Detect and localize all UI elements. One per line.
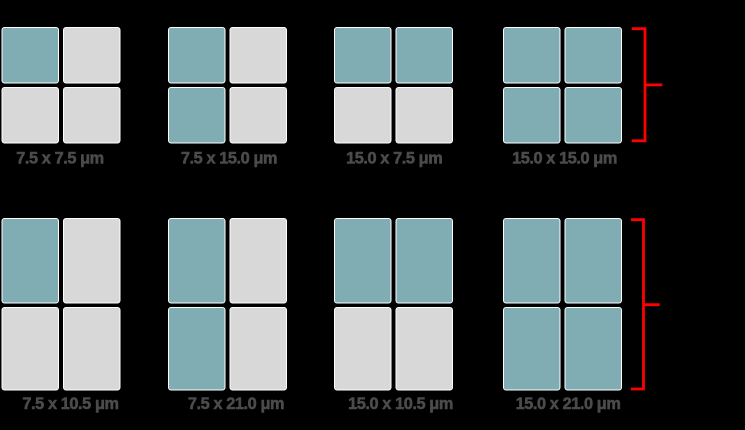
svg-text:15.0 x 15.0 μm: 15.0 x 15.0 μm bbox=[512, 150, 617, 168]
svg-text:7.5 x 15.0 μm: 7.5 x 15.0 μm bbox=[181, 150, 277, 168]
svg-text:7.5 x 7.5 μm: 7.5 x 7.5 μm bbox=[16, 150, 104, 168]
svg-text:15.0 x 21.0 μm: 15.0 x 21.0 μm bbox=[516, 395, 621, 413]
svg-text:15.0 x 10.5 μm: 15.0 x 10.5 μm bbox=[348, 395, 453, 413]
svg-text:15.0 x 7.5 μm: 15.0 x 7.5 μm bbox=[346, 150, 442, 168]
svg-text:7.5 x 21.0 μm: 7.5 x 21.0 μm bbox=[188, 395, 284, 413]
svg-text:7.5 x 10.5 μm: 7.5 x 10.5 μm bbox=[22, 395, 118, 413]
